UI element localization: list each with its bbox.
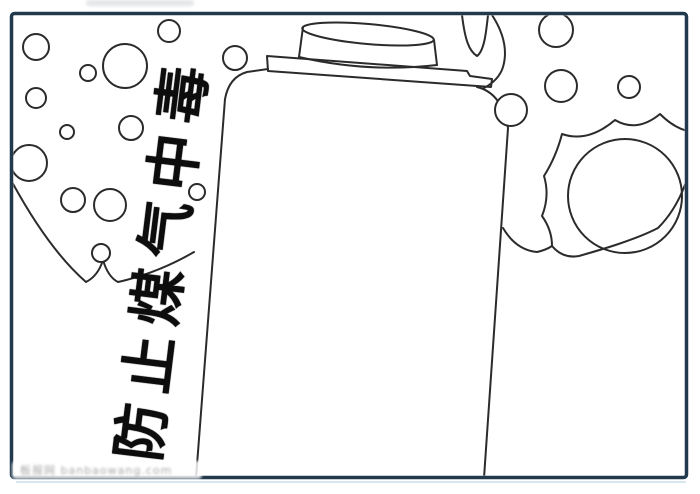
bubble	[158, 20, 180, 42]
bubble	[23, 34, 49, 60]
bubble	[26, 88, 46, 108]
bubble	[80, 65, 96, 81]
smoke-cloud-right	[503, 228, 552, 252]
gas-tank-collar	[267, 56, 492, 87]
smoke-loop	[462, 15, 488, 56]
starburst-core	[568, 139, 682, 253]
bubble	[539, 13, 573, 47]
gas-tank-body-right	[477, 87, 508, 478]
bubble	[618, 76, 640, 98]
poster-canvas: 防止煤气中毒 板报网 banbaowang.com	[0, 0, 700, 494]
page: { "colors": { "paper": "#ffffff", "borde…	[0, 0, 700, 494]
bubble	[92, 244, 110, 262]
watermark: 板报网 banbaowang.com	[12, 461, 202, 479]
bubble	[103, 44, 147, 88]
scan-smudge	[86, 0, 194, 6]
bubble	[495, 94, 527, 126]
bubble	[223, 46, 247, 70]
bubble	[545, 70, 577, 102]
bubble	[119, 116, 143, 140]
poster-illustration	[0, 0, 700, 494]
gas-tank-cap	[299, 18, 437, 67]
bubble	[60, 125, 74, 139]
bubble	[61, 188, 85, 212]
bubble	[94, 189, 126, 221]
bubbles-layer	[11, 13, 640, 262]
bubble	[11, 145, 47, 181]
